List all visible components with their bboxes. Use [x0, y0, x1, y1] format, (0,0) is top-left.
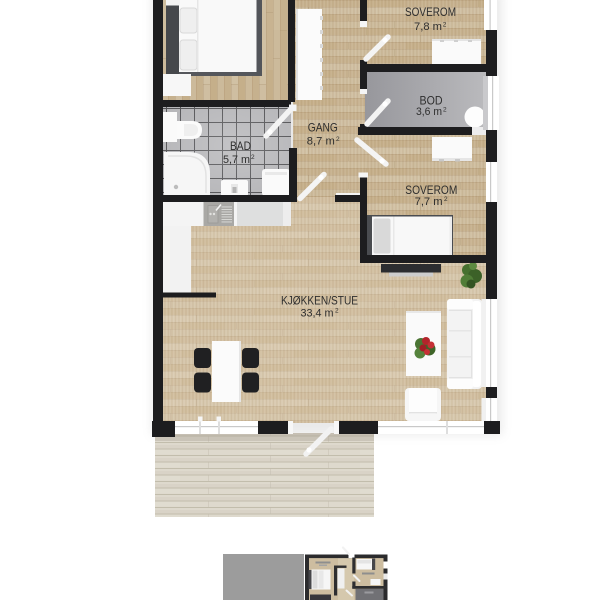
- svg-text:2: 2: [443, 106, 447, 113]
- svg-text:33,4 m: 33,4 m: [301, 307, 334, 319]
- svg-text:2: 2: [335, 307, 339, 314]
- svg-text:8,7 m: 8,7 m: [307, 136, 335, 148]
- svg-text:2: 2: [251, 154, 255, 161]
- svg-text:7,8 m: 7,8 m: [414, 21, 442, 33]
- svg-text:3,6 m: 3,6 m: [416, 106, 442, 118]
- svg-text:BAD: BAD: [230, 139, 251, 153]
- svg-text:2: 2: [444, 196, 448, 203]
- svg-text:7,7 m: 7,7 m: [415, 196, 443, 208]
- svg-text:GANG: GANG: [308, 120, 338, 134]
- svg-text:2: 2: [443, 21, 447, 28]
- svg-text:SOVEROM: SOVEROM: [405, 183, 457, 197]
- svg-text:5,7 m: 5,7 m: [223, 154, 250, 166]
- svg-text:KJØKKEN/STUE: KJØKKEN/STUE: [281, 294, 358, 308]
- svg-text:SOVEROM: SOVEROM: [405, 5, 456, 19]
- svg-text:2: 2: [336, 136, 340, 143]
